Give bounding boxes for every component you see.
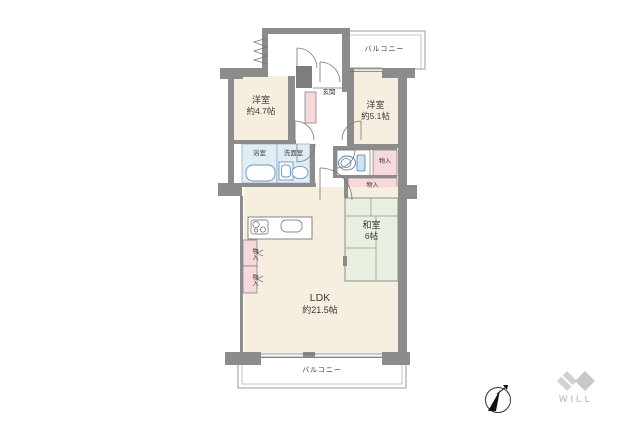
room-porch bbox=[268, 34, 342, 68]
wall-segment bbox=[288, 76, 295, 144]
closet-kitchen-1-label: 物入 bbox=[243, 243, 257, 265]
wall-segment bbox=[303, 352, 315, 357]
wall-segment bbox=[343, 256, 347, 266]
bathtub-icon bbox=[246, 165, 275, 181]
will-logo-icon bbox=[557, 371, 595, 391]
wall-segment bbox=[262, 30, 268, 76]
compass-icon bbox=[486, 385, 511, 413]
ldk-label: LDK 約21.5帖 bbox=[270, 292, 370, 316]
wall-segment bbox=[228, 76, 234, 196]
wall-segment bbox=[398, 185, 417, 199]
kitchen-counter bbox=[248, 217, 312, 239]
closet-right-label: 物入 bbox=[373, 159, 397, 167]
floorplan-drawing bbox=[0, 0, 640, 427]
wall-segment bbox=[333, 150, 337, 178]
floorplan-canvas: バルコニー バルコニー 洋室 約4.7帖 洋室 約5.1帖 玄関 浴室 洗面室 … bbox=[0, 0, 640, 427]
western2-label: 洋室 約5.1帖 bbox=[353, 100, 398, 122]
closet-kitchen-2-label: 物入 bbox=[243, 269, 257, 291]
wall-segment bbox=[353, 144, 398, 148]
sink-icon bbox=[281, 220, 302, 232]
balcony-bottom-label: バルコニー bbox=[238, 367, 406, 376]
wall-segment bbox=[382, 352, 410, 365]
bath-label: 浴室 bbox=[242, 150, 277, 158]
wall-segment bbox=[398, 68, 407, 358]
wall-segment bbox=[240, 183, 316, 187]
wall-segment bbox=[234, 140, 296, 144]
entrance-label: 玄関 bbox=[304, 89, 354, 97]
washroom-label: 洗面室 bbox=[277, 150, 310, 158]
japanese-room-label: 和室 6帖 bbox=[345, 220, 398, 242]
room-hall bbox=[315, 144, 333, 188]
closet-mid-label: 物入 bbox=[348, 183, 397, 191]
will-logo-text: WILL bbox=[545, 394, 607, 404]
wall-segment bbox=[296, 66, 312, 88]
basin-icon bbox=[292, 166, 308, 178]
wall-segment bbox=[262, 28, 350, 34]
western1-label: 洋室 約4.7帖 bbox=[234, 95, 288, 117]
balcony-top-label: バルコニー bbox=[344, 46, 425, 55]
wall-segment bbox=[218, 183, 242, 196]
toilet-icon bbox=[339, 155, 366, 171]
